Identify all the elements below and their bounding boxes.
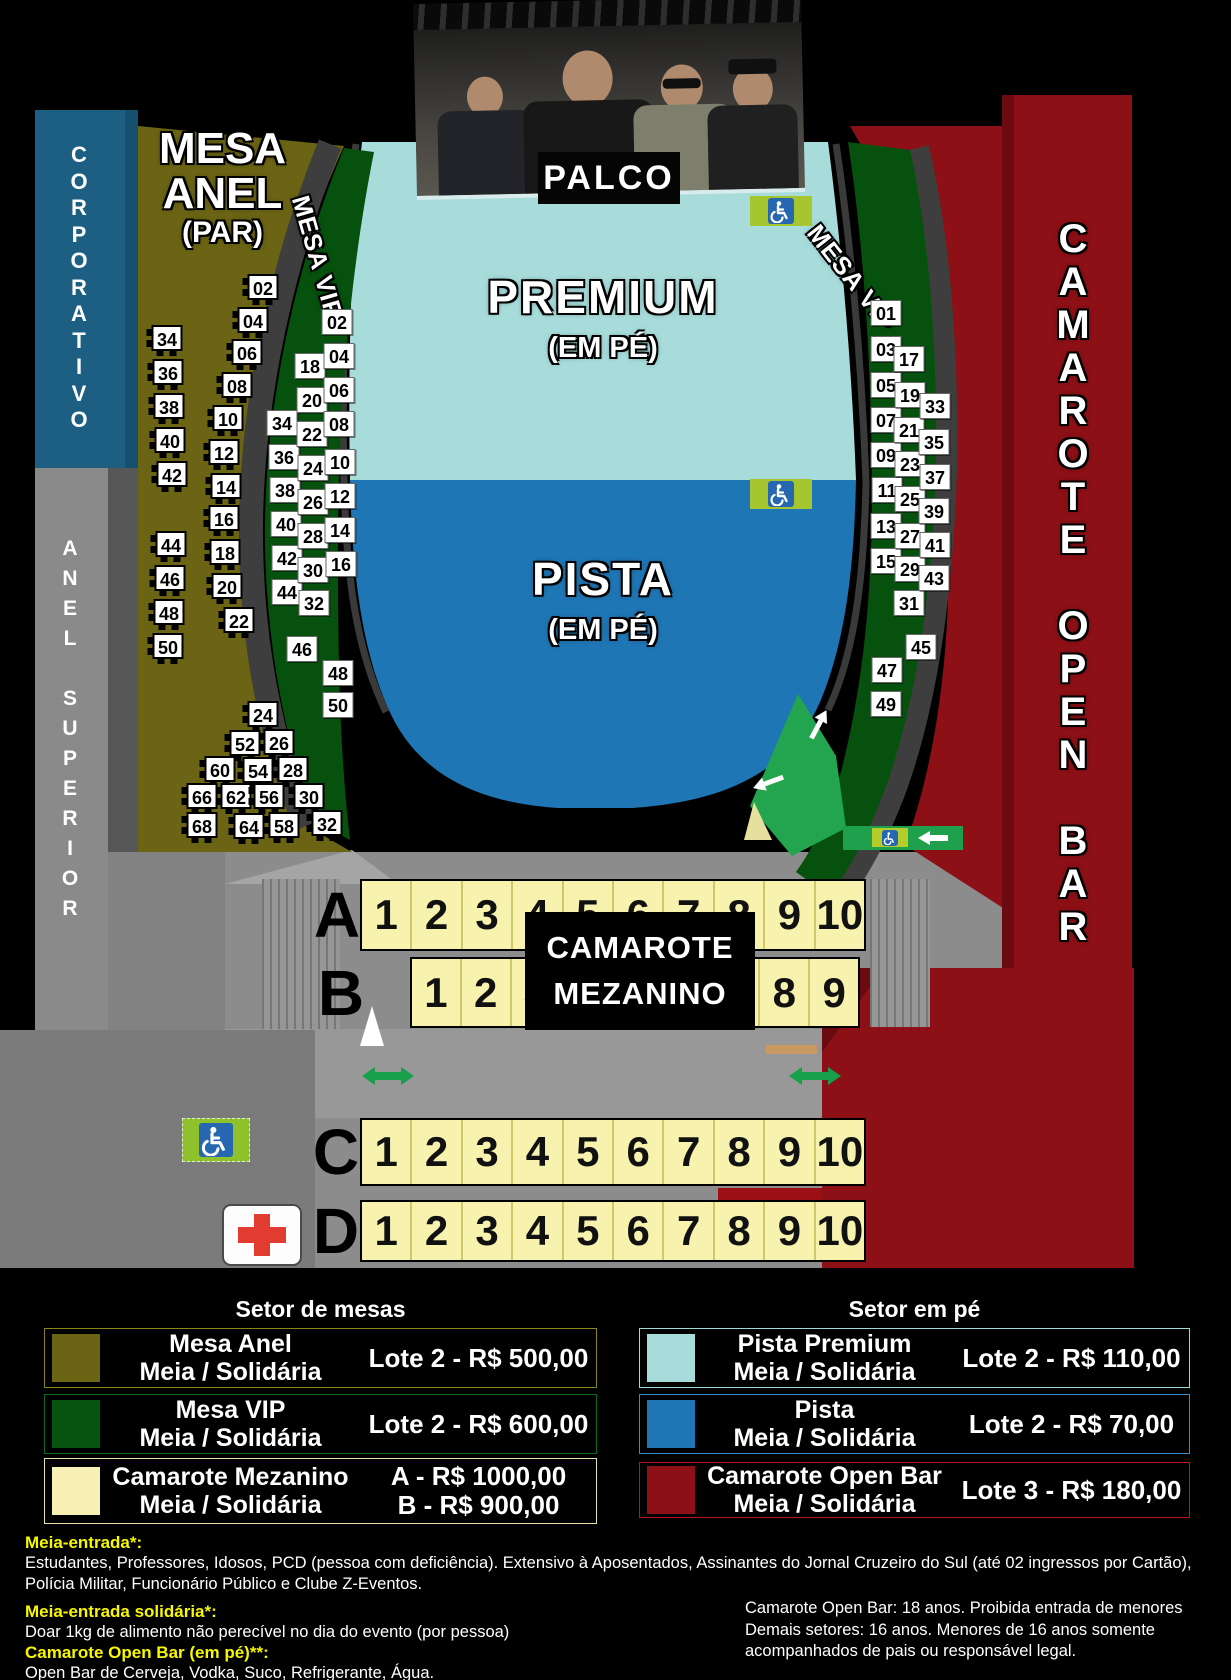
seat-A2: 2 (412, 881, 462, 949)
table-02: 02 (322, 309, 353, 335)
table-28: 28 (278, 756, 309, 782)
seat-A10: 10 (816, 881, 864, 949)
seat-D8: 8 (715, 1202, 765, 1260)
seat-C6: 6 (614, 1120, 664, 1184)
table-10: 10 (325, 449, 356, 475)
wheelchair-sign (750, 479, 812, 509)
table-34: 34 (267, 410, 298, 436)
table-52: 52 (230, 730, 261, 756)
table-45: 45 (906, 634, 937, 660)
legend-name: Pista PremiumMeia / Solidária (695, 1330, 954, 1386)
table-30: 30 (294, 783, 325, 809)
seat-B1: 1 (412, 959, 462, 1026)
table-66: 66 (187, 783, 218, 809)
red-strip (718, 1188, 822, 1200)
table-49: 49 (871, 691, 902, 717)
seat-C1: 1 (362, 1120, 412, 1184)
seat-C7: 7 (664, 1120, 714, 1184)
table-68: 68 (187, 812, 218, 838)
table-64: 64 (234, 813, 265, 839)
legend-swatch (647, 1466, 695, 1514)
seat-B8: 8 (760, 959, 810, 1026)
table-43: 43 (919, 565, 950, 591)
row-label-C: C (313, 1115, 359, 1189)
pista-label: PISTA (EM PÉ) (350, 552, 856, 647)
legend-item-camarote-open-bar: Camarote Open BarMeia / SolidáriaLote 3 … (639, 1462, 1190, 1518)
table-06: 06 (232, 339, 263, 365)
table-24: 24 (248, 701, 279, 727)
table-60: 60 (205, 756, 236, 782)
seat-C4: 4 (513, 1120, 563, 1184)
seat-D6: 6 (614, 1202, 664, 1260)
table-20: 20 (212, 573, 243, 599)
seat-C10: 10 (816, 1120, 864, 1184)
row-label-B: B (318, 956, 364, 1030)
seat-D10: 10 (816, 1202, 864, 1260)
table-08: 08 (222, 372, 253, 398)
legend-item-mesa-vip: Mesa VIPMeia / SolidáriaLote 2 - R$ 600,… (44, 1394, 597, 1454)
legend-title-pe: Setor em pé (639, 1296, 1190, 1323)
wheelchair-sign (182, 1118, 250, 1162)
table-46: 46 (287, 636, 318, 662)
table-26: 26 (264, 729, 295, 755)
seat-B9: 9 (810, 959, 858, 1026)
legend-item-mesa-anel: Mesa AnelMeia / SolidáriaLote 2 - R$ 500… (44, 1328, 597, 1388)
stairs-block (870, 879, 930, 1027)
seat-A9: 9 (765, 881, 815, 949)
table-22: 22 (224, 607, 255, 633)
table-46: 46 (155, 565, 186, 591)
wheelchair-icon (882, 830, 898, 846)
note-body: Open Bar de Cerveja, Vodka, Suco, Refrig… (25, 1663, 1210, 1680)
legend-item-camarote-mezanino: Camarote MezaninoMeia / SolidáriaA - R$ … (44, 1458, 597, 1524)
seat-C8: 8 (715, 1120, 765, 1184)
legend-swatch (647, 1400, 695, 1448)
legend-title-mesas: Setor de mesas (44, 1296, 597, 1323)
table-35: 35 (919, 429, 950, 455)
seat-A1: 1 (362, 881, 412, 949)
legend-price: A - R$ 1000,00 B - R$ 900,00 (361, 1462, 596, 1520)
legend-name: PistaMeia / Solidária (695, 1396, 954, 1452)
legend-price: Lote 2 - R$ 70,00 (954, 1410, 1189, 1439)
table-18: 18 (210, 539, 241, 565)
legend-price: Lote 3 - R$ 180,00 (954, 1476, 1189, 1505)
table-32: 32 (299, 590, 330, 616)
table-58: 58 (269, 812, 300, 838)
table-50: 50 (323, 692, 354, 718)
note-heading: Meia-entrada*: (25, 1533, 142, 1553)
table-16: 16 (326, 551, 357, 577)
table-16: 16 (209, 505, 240, 531)
table-10: 10 (213, 405, 244, 431)
table-50: 50 (153, 633, 184, 659)
legend-price: Lote 2 - R$ 500,00 (361, 1344, 596, 1373)
table-36: 36 (153, 359, 184, 385)
table-02: 02 (248, 274, 279, 300)
table-04: 04 (238, 307, 269, 333)
table-30: 30 (298, 557, 329, 583)
mesa-anel-title: MESA ANEL (PAR) (140, 126, 305, 250)
seat-B2: 2 (462, 959, 512, 1026)
table-14: 14 (325, 517, 356, 543)
legend-item-pista-premium: Pista PremiumMeia / SolidáriaLote 2 - R$… (639, 1328, 1190, 1388)
table-06: 06 (324, 377, 355, 403)
table-38: 38 (270, 477, 301, 503)
table-54: 54 (243, 757, 274, 783)
table-12: 12 (209, 439, 240, 465)
seat-row-C: 12345678910 (360, 1118, 866, 1186)
table-40: 40 (155, 427, 186, 453)
wheelchair-icon (768, 481, 794, 507)
seat-C2: 2 (412, 1120, 462, 1184)
table-36: 36 (269, 444, 300, 470)
table-44: 44 (156, 531, 187, 557)
table-38: 38 (154, 393, 185, 419)
table-17: 17 (894, 346, 925, 372)
table-04: 04 (324, 343, 355, 369)
seat-D2: 2 (412, 1202, 462, 1260)
seat-C3: 3 (463, 1120, 513, 1184)
wheelchair-icon (199, 1123, 233, 1157)
row-label-D: D (313, 1194, 359, 1268)
premium-label: PREMIUM (EM PÉ) (350, 270, 856, 365)
table-48: 48 (323, 660, 354, 686)
table-34: 34 (152, 325, 183, 351)
table-33: 33 (920, 393, 951, 419)
wheelchair-sign (872, 828, 908, 847)
note-heading: Camarote Open Bar (em pé)**: (25, 1643, 269, 1663)
seat-D7: 7 (664, 1202, 714, 1260)
note-heading: Meia-entrada solidária*: (25, 1602, 217, 1622)
table-01: 01 (871, 300, 902, 326)
seat-C5: 5 (564, 1120, 614, 1184)
legend-swatch (52, 1467, 100, 1515)
legend-price: Lote 2 - R$ 110,00 (954, 1344, 1189, 1373)
wheelchair-sign (750, 196, 812, 226)
table-42: 42 (157, 461, 188, 487)
table-56: 56 (254, 783, 285, 809)
seat-D3: 3 (463, 1202, 513, 1260)
corporativo-panel-bevel (125, 110, 138, 468)
seat-C9: 9 (765, 1120, 815, 1184)
table-32: 32 (312, 810, 343, 836)
legend-name: Mesa AnelMeia / Solidária (100, 1330, 361, 1386)
table-31: 31 (894, 590, 925, 616)
seat-D4: 4 (513, 1202, 563, 1260)
first-aid-icon (222, 1204, 302, 1266)
venue-seating-map: PALCO C O R P O R A T I V O A N E L S U … (0, 0, 1231, 1680)
legend-price: Lote 2 - R$ 600,00 (361, 1410, 596, 1439)
table-12: 12 (325, 483, 356, 509)
seat-D5: 5 (564, 1202, 614, 1260)
tan-bar (766, 1045, 817, 1054)
table-41: 41 (920, 532, 951, 558)
seat-D9: 9 (765, 1202, 815, 1260)
legend-swatch (647, 1334, 695, 1382)
camarote-open-bar-label: C A M A R O T E O P E N B A R (1040, 218, 1106, 949)
legend-name: Camarote MezaninoMeia / Solidária (100, 1463, 361, 1519)
camarote-mezanino-overlay: CAMAROTE MEZANINO (525, 912, 755, 1030)
legend-swatch (52, 1400, 100, 1448)
seat-D1: 1 (362, 1202, 412, 1260)
wheelchair-icon (768, 198, 794, 224)
table-37: 37 (920, 464, 951, 490)
legend-name: Mesa VIPMeia / Solidária (100, 1396, 361, 1452)
age-restrictions: Camarote Open Bar: 18 anos. Proibida ent… (745, 1598, 1220, 1663)
legend-swatch (52, 1334, 100, 1382)
row-label-A: A (314, 878, 360, 952)
table-39: 39 (919, 498, 950, 524)
legend-item-pista: PistaMeia / SolidáriaLote 2 - R$ 70,00 (639, 1394, 1190, 1454)
stage-label: PALCO (538, 152, 680, 204)
legend-name: Camarote Open BarMeia / Solidária (695, 1462, 954, 1518)
seat-row-D: 12345678910 (360, 1200, 866, 1262)
table-18: 18 (295, 353, 326, 379)
table-62: 62 (221, 783, 252, 809)
seat-A3: 3 (463, 881, 513, 949)
table-08: 08 (324, 411, 355, 437)
note-body: Estudantes, Professores, Idosos, PCD (pe… (25, 1553, 1210, 1595)
anel-superior-label: A N E L S U P E R I O R (44, 534, 96, 924)
table-48: 48 (154, 599, 185, 625)
table-14: 14 (211, 473, 242, 499)
table-47: 47 (872, 657, 903, 683)
corporativo-label: C O R P O R A T I V O (52, 142, 106, 434)
